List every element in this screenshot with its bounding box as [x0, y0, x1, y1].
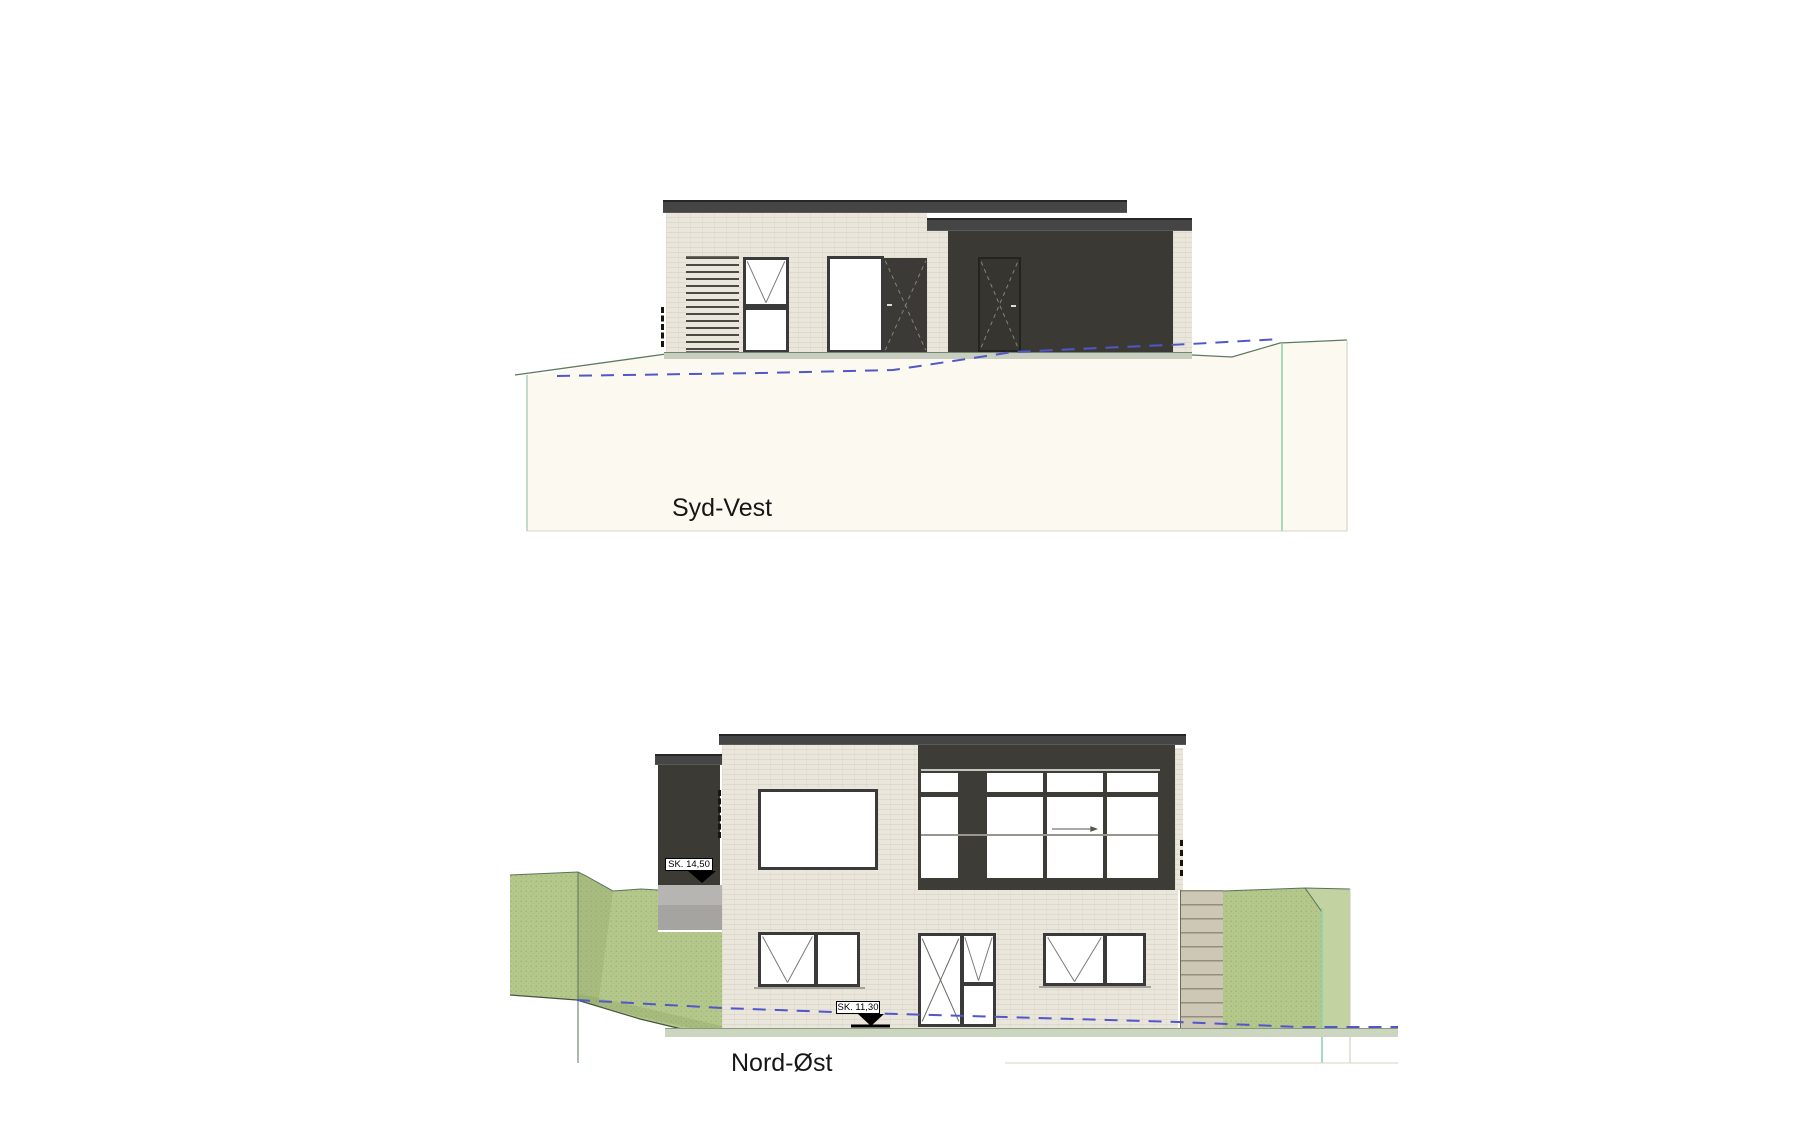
sv-existing-terrain-dashed-line — [557, 339, 1281, 376]
existing-terrain-overlay — [0, 0, 1815, 1123]
level-marker-1130-triangle-icon — [858, 1014, 884, 1026]
elevation-drawing-sheet: Syd-Vest — [0, 0, 1815, 1123]
sv-elevation-title: Syd-Vest — [672, 494, 772, 523]
level-marker-1130-label: SK. 11,30 — [836, 1001, 880, 1014]
level-marker-1450-label: SK. 14,50 — [665, 858, 713, 871]
level-marker-1450-triangle-icon — [688, 871, 716, 883]
no-elevation-title: Nord-Øst — [731, 1049, 832, 1078]
no-existing-terrain-dashed-line — [577, 1000, 1398, 1027]
